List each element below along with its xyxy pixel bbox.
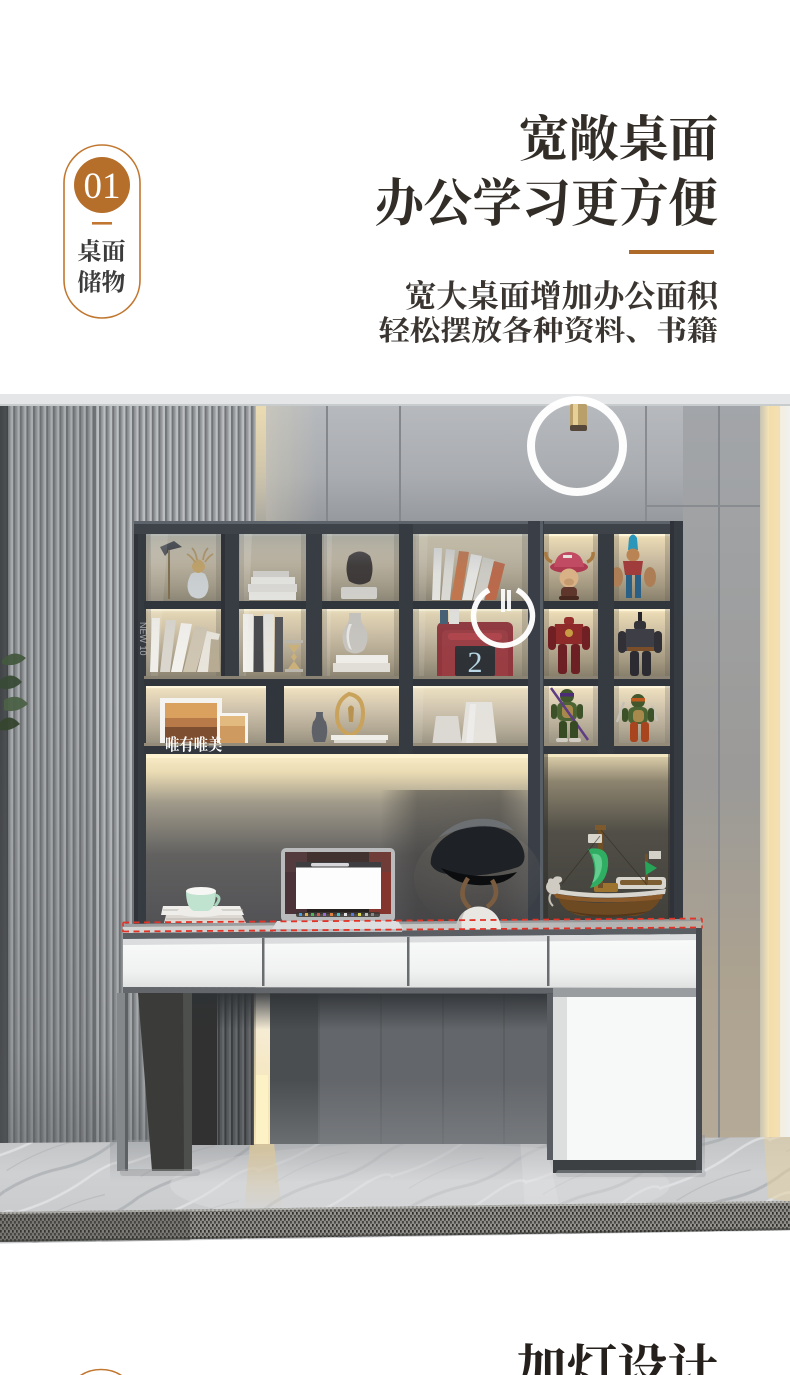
- svg-text:NEW 10: NEW 10: [138, 622, 148, 656]
- svg-text:01: 01: [84, 166, 121, 207]
